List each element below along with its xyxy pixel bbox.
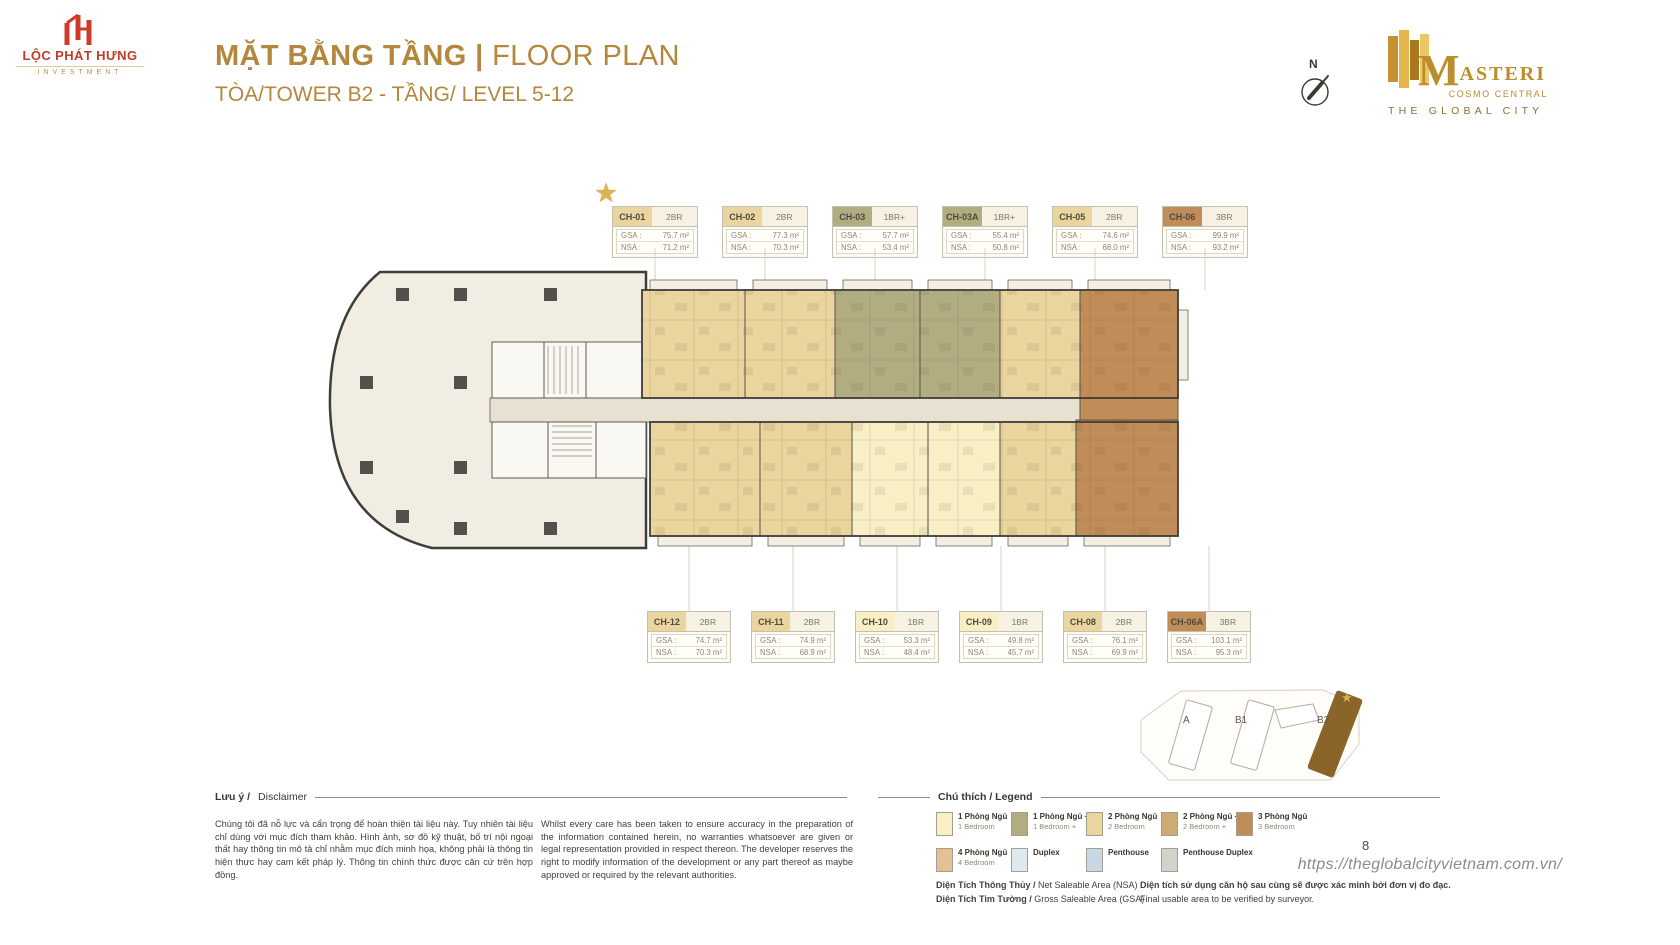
page-subtitle: TÒA/TOWER B2 - TẦNG/ LEVEL 5-12 — [215, 83, 574, 107]
title-vietnamese: MẶT BẰNG TẦNG — [215, 40, 467, 72]
legend-label-en: 1 Bedroom + — [1033, 822, 1089, 832]
legend-label-vi: 1 Phòng Ngủ — [958, 812, 1007, 822]
legend-label-en: 2 Bedroom — [1108, 822, 1157, 832]
gsa-value: 76.1 m² — [1112, 636, 1138, 645]
unit-code: CH-08 — [1064, 612, 1102, 631]
nsa-value: 45.7 m² — [1008, 648, 1034, 657]
legend-item-penthouse: Penthouse — [1086, 848, 1161, 872]
legend-swatch — [936, 812, 953, 836]
legend-label-vi: Penthouse — [1108, 848, 1149, 858]
unit-type: 2BR — [790, 612, 834, 631]
disclaimer-title-vi: Lưu ý / — [215, 791, 250, 803]
gsa-label: GSA : — [864, 636, 884, 645]
gsa-value: 53.3 m² — [904, 636, 930, 645]
gsa-label: GSA : — [760, 636, 780, 645]
page: LỘC PHÁT HƯNG INVESTMENT MẶT BẰNG TẦNG |… — [0, 0, 1680, 945]
legend-item-3br: 3 Phòng Ngủ3 Bedroom — [1236, 812, 1311, 836]
gsa-definition-vi: Diện Tích Tim Tường / — [936, 894, 1032, 904]
legend-swatch — [1086, 812, 1103, 836]
legend-label-vi: Penthouse Duplex — [1183, 848, 1253, 858]
website-url[interactable]: https://theglobalcityvietnam.com.vn/ — [1298, 856, 1562, 874]
divider-line — [878, 797, 930, 798]
unit-code: CH-10 — [856, 612, 894, 631]
legend-label-en: 2 Bedroom + — [1183, 822, 1239, 832]
page-number: 8 — [1362, 838, 1369, 853]
legend-header: Chú thích / Legend — [878, 791, 1440, 803]
legend-swatch — [1161, 812, 1178, 836]
nsa-label: NSA : — [760, 648, 780, 657]
legend-swatch — [1161, 848, 1178, 872]
area-definitions: Diện Tích Thông Thủy / Net Saleable Area… — [936, 879, 1144, 906]
legend-label-vi: 4 Phòng Ngủ — [958, 848, 1007, 858]
nsa-definition-vi: Diện Tích Thông Thủy / — [936, 880, 1036, 890]
developer-logo: LỘC PHÁT HƯNG INVESTMENT — [16, 12, 144, 76]
gsa-label: GSA : — [656, 636, 676, 645]
legend-item-2br: 2 Phòng Ngủ2 Bedroom — [1086, 812, 1161, 836]
legend-label-en: 3 Bedroom — [1258, 822, 1307, 832]
unit-card-ch-09: CH-091BR GSA :49.8 m² NSA :45.7 m² — [959, 611, 1043, 663]
unit-card-ch-06a: CH-06A3BR GSA :103.1 m² NSA :95.3 m² — [1167, 611, 1251, 663]
tower-a-label: A — [1183, 715, 1190, 726]
unit-code: CH-12 — [648, 612, 686, 631]
developer-name: LỘC PHÁT HƯNG — [16, 48, 144, 63]
title-english: FLOOR PLAN — [492, 40, 680, 72]
compass-icon: N — [1296, 54, 1336, 114]
nsa-label: NSA : — [656, 648, 676, 657]
legend-swatch — [1236, 812, 1253, 836]
legend-swatch — [1011, 812, 1028, 836]
legend-item-2br-plus: 2 Phòng Ngủ +2 Bedroom + — [1161, 812, 1236, 836]
nsa-label: NSA : — [864, 648, 884, 657]
legend-label-en: 1 Bedroom — [958, 822, 1007, 832]
gsa-value: 74.9 m² — [800, 636, 826, 645]
legend-label-en: 4 Bedroom — [958, 858, 1007, 868]
nsa-value: 69.9 m² — [1112, 648, 1138, 657]
floor-plan — [320, 180, 1260, 660]
divider-line — [1041, 797, 1441, 798]
disclaimer-body-en: Whilst every care has been taken to ensu… — [541, 818, 853, 881]
unit-cards-bottom: CH-122BR GSA :74.7 m² NSA :70.3 m² CH-11… — [647, 611, 1251, 663]
project-tagline: THE GLOBAL CITY — [1388, 105, 1548, 117]
gsa-label: GSA : — [1072, 636, 1092, 645]
area-note-en: Final usable area to be verified by surv… — [1140, 893, 1451, 907]
room-detail-top — [642, 290, 1178, 398]
unit-type: 1BR — [998, 612, 1042, 631]
unit-type: 1BR — [894, 612, 938, 631]
developer-logo-mark — [58, 12, 102, 46]
unit-type: 3BR — [1206, 612, 1250, 631]
gsa-definition-en: Gross Saleable Area (GSA) — [1032, 894, 1145, 904]
gsa-value: 74.7 m² — [696, 636, 722, 645]
nsa-label: NSA : — [1072, 648, 1092, 657]
unit-code: CH-09 — [960, 612, 998, 631]
project-logo: M ASTERI COSMO CENTRAL THE GLOBAL CITY — [1388, 30, 1548, 117]
nsa-value: 70.3 m² — [696, 648, 722, 657]
nsa-definition-en: Net Saleable Area (NSA) — [1036, 880, 1138, 890]
disclaimer-header: Lưu ý / Disclaimer — [215, 791, 847, 803]
unit-code: CH-06A — [1168, 612, 1206, 631]
unit-card-ch-10: CH-101BR GSA :53.3 m² NSA :48.4 m² — [855, 611, 939, 663]
legend-swatch — [1086, 848, 1103, 872]
tower-b2-label: B2 — [1317, 715, 1330, 726]
legend-item-penthouse-duplex: Penthouse Duplex — [1161, 848, 1236, 872]
room-detail-bottom — [650, 422, 1178, 536]
developer-subtitle: INVESTMENT — [16, 66, 144, 76]
legend-label-vi: 3 Phòng Ngủ — [1258, 812, 1307, 822]
area-note-vi: Diện tích sử dụng căn hộ sau cùng sẽ đượ… — [1140, 879, 1451, 893]
unit-card-ch-11: CH-112BR GSA :74.9 m² NSA :68.9 m² — [751, 611, 835, 663]
gsa-value: 49.8 m² — [1008, 636, 1034, 645]
star-icon: ★ — [1341, 690, 1353, 705]
unit-type: 2BR — [686, 612, 730, 631]
project-name-initial: M — [1418, 53, 1460, 88]
divider-line — [315, 797, 847, 798]
legend-item-duplex: Duplex — [1011, 848, 1086, 872]
project-subname: COSMO CENTRAL — [1388, 89, 1548, 99]
page-title: MẶT BẰNG TẦNG | FLOOR PLAN — [215, 40, 680, 73]
legend-title: Chú thích / Legend — [938, 791, 1033, 803]
legend-item-4br: 4 Phòng Ngủ4 Bedroom — [936, 848, 1011, 872]
disclaimer-title-en: Disclaimer — [258, 791, 307, 803]
unit-card-ch-12: CH-122BR GSA :74.7 m² NSA :70.3 m² — [647, 611, 731, 663]
legend-grid: 1 Phòng Ngủ1 Bedroom 1 Phòng Ngủ +1 Bedr… — [936, 812, 1311, 872]
site-minimap: A B1 B2 ★ — [1125, 686, 1365, 788]
corridor — [490, 398, 1120, 422]
project-name: ASTERI — [1460, 63, 1546, 86]
tower-b1-label: B1 — [1235, 715, 1248, 726]
nsa-value: 95.3 m² — [1216, 648, 1242, 657]
gsa-label: GSA : — [1176, 636, 1196, 645]
nsa-label: NSA : — [968, 648, 988, 657]
legend-label-vi: 2 Phòng Ngủ + — [1183, 812, 1239, 822]
gsa-value: 103.1 m² — [1211, 636, 1242, 645]
unit-code: CH-11 — [752, 612, 790, 631]
compass-north-label: N — [1309, 57, 1318, 71]
area-note: Diện tích sử dụng căn hộ sau cùng sẽ đượ… — [1140, 879, 1451, 906]
nsa-label: NSA : — [1176, 648, 1196, 657]
nsa-value: 48.4 m² — [904, 648, 930, 657]
nsa-value: 68.9 m² — [800, 648, 826, 657]
title-separator: | — [467, 40, 492, 72]
star-icon: ★ — [594, 178, 618, 209]
legend-label-vi: 2 Phòng Ngủ — [1108, 812, 1157, 822]
legend-item-1br-plus: 1 Phòng Ngủ +1 Bedroom + — [1011, 812, 1086, 836]
unit-type: 2BR — [1102, 612, 1146, 631]
legend-swatch — [1011, 848, 1028, 872]
gsa-label: GSA : — [968, 636, 988, 645]
legend-label-vi: Duplex — [1033, 848, 1060, 858]
legend-swatch — [936, 848, 953, 872]
legend-label-vi: 1 Phòng Ngủ + — [1033, 812, 1089, 822]
legend-item-1br: 1 Phòng Ngủ1 Bedroom — [936, 812, 1011, 836]
unit-card-ch-08: CH-082BR GSA :76.1 m² NSA :69.9 m² — [1063, 611, 1147, 663]
disclaimer-body-vi: Chúng tôi đã nỗ lực và cẩn trọng để hoàn… — [215, 818, 533, 881]
